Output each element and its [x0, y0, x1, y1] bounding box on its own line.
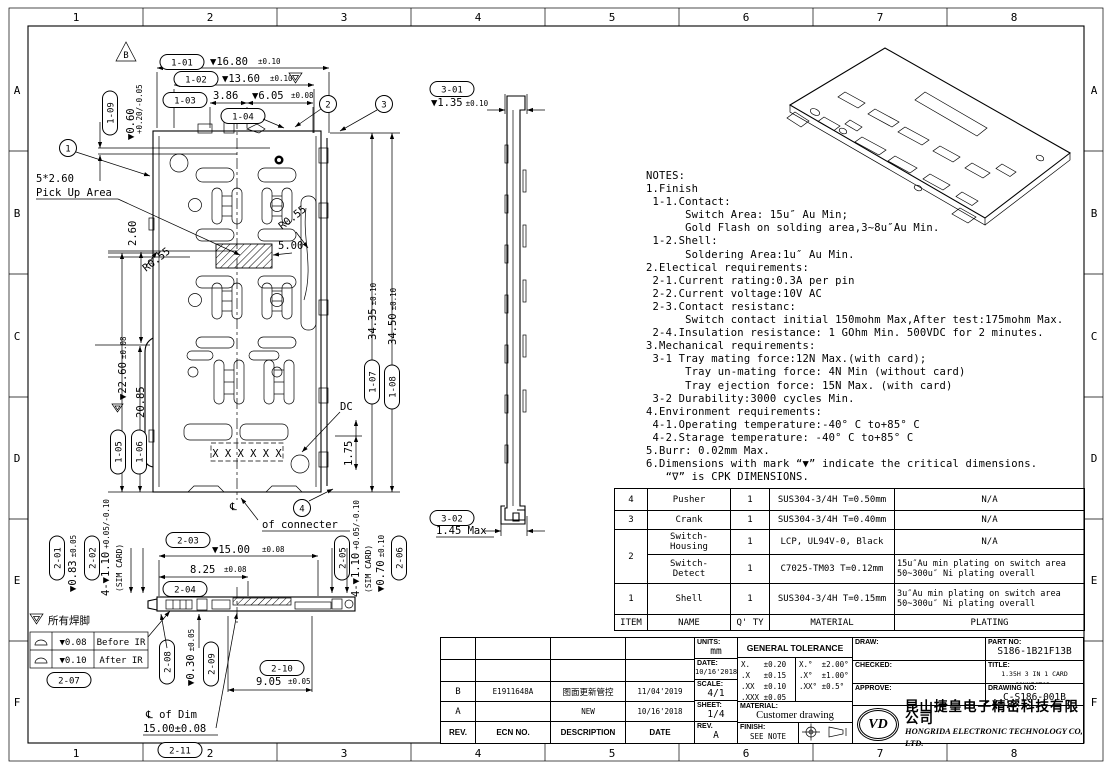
- bom-material: SUS304-3/4H T=0.50mm: [770, 489, 895, 511]
- tolerance-right: X.° ±2.00° .X° ±1.00° .XX° ±0.5°: [795, 657, 853, 702]
- grid-col-label: 2: [207, 747, 214, 760]
- grid-col-label: 4: [475, 747, 482, 760]
- bom-header-name: NAME: [648, 615, 731, 631]
- radius-label-r055: R0.55: [140, 245, 172, 274]
- rev-header-rev: REV.: [440, 721, 476, 744]
- rev-row-a-date: 10/16'2018: [625, 701, 695, 722]
- tolerance-right-values: X.° ±2.00° .X° ±1.00° .XX° ±0.5°: [796, 658, 852, 692]
- company-cell: VD 昆山捷皇电子精密科技有限公司 HONGRIDA ELECTRONIC TE…: [852, 705, 1084, 744]
- balloon-2-09: 2-09: [208, 653, 218, 675]
- bom-table: 4 Pusher 1 SUS304-3/4H T=0.50mm N/A 3 Cr…: [614, 488, 1085, 631]
- dim-3-01-text: ▼1.35±0.10: [431, 97, 489, 109]
- balloon-2-06: 2-06: [396, 547, 406, 569]
- sheet-label: SHEET:: [695, 701, 737, 709]
- dc-mark-text: X X X X X X: [212, 448, 282, 460]
- dim-1-07-text: 34.35±0.10: [367, 282, 379, 340]
- bom-qty: 1: [731, 511, 770, 530]
- dim-2-05-value: 4-▼1.10: [350, 553, 362, 597]
- flatness-before-label: Before IR: [97, 638, 146, 648]
- bom-material: SUS304-3/4H T=0.40mm: [770, 511, 895, 530]
- rev-value: A: [695, 730, 737, 741]
- flatness-after-value: ▼0.10: [59, 656, 86, 666]
- dim-2-03-tol: ±0.08: [262, 545, 285, 554]
- bom-material: C7025-TM03 T=0.12mm: [770, 555, 895, 584]
- rev-cell-empty: [475, 659, 551, 682]
- flatness-callout: 所有焊脚 ▼0.08 Before IR ▼0.10 After IR 2-07: [30, 611, 170, 688]
- cpk-symbol: [112, 404, 123, 412]
- rev-row-b-ecn: E1911648A: [475, 681, 551, 702]
- dim-2-01-text: ▼0.83±0.05: [67, 535, 79, 592]
- bom-item: 3: [615, 511, 648, 530]
- balloon-3-02: 3-02: [441, 515, 463, 525]
- dim-5-00: 5.00: [278, 240, 303, 252]
- grid-col-label: 1: [73, 11, 80, 24]
- material-label: MATERIAL:: [738, 702, 852, 710]
- grid-row-label: E: [14, 574, 21, 587]
- flatness-symbol-icon: [35, 658, 47, 663]
- bom-plating: N/A: [895, 511, 1085, 530]
- grid-col-label: 4: [475, 11, 482, 24]
- rev-cell-empty: [625, 637, 695, 660]
- company-name-en: HONGRIDA ELECTRONIC TECHNOLOGY CO, LTD.: [905, 725, 1083, 749]
- grid-row-label: B: [14, 207, 21, 220]
- grid-col-label: 3: [341, 747, 348, 760]
- grid-row-label: A: [14, 84, 21, 97]
- dim-2-02-value: 4-▼1.10: [100, 552, 112, 596]
- bom-header-material: MATERIAL: [770, 615, 895, 631]
- grid-row-label: D: [14, 452, 21, 465]
- bom-name: Switch- Housing: [648, 530, 731, 555]
- scale-value: 4/1: [695, 688, 737, 699]
- dc-label: DC: [340, 401, 353, 413]
- rev-cell-empty: [625, 659, 695, 682]
- checked-cell: CHECKED:: [852, 660, 986, 684]
- grid-row-label: C: [1091, 330, 1098, 343]
- dim-1-08-tol: ±0.10: [389, 287, 398, 310]
- scale-label: SCALE:: [695, 680, 737, 688]
- grid-col-label: 6: [743, 11, 750, 24]
- bom-qty: 1: [731, 530, 770, 555]
- bom-qty: 1: [731, 584, 770, 615]
- bom-plating: N/A: [895, 489, 1085, 511]
- rev-row-b-desc: 图面更新管控: [550, 681, 626, 702]
- bom-material: SUS304-3/4H T=0.15mm: [770, 584, 895, 615]
- scale-cell: SCALE: 4/1: [694, 679, 738, 701]
- finish-value: SEE NOTE: [738, 731, 798, 742]
- rev-header-ecn: ECN NO.: [475, 721, 551, 744]
- bom-header-qty: Q' TY: [731, 615, 770, 631]
- bom-name: Switch- Detect: [648, 555, 731, 584]
- grid-col-label: 7: [877, 747, 884, 760]
- grid-col-label: 2: [207, 11, 214, 24]
- of-connecter-label: of connecter: [262, 519, 338, 531]
- part-balloon-4-label: 4: [299, 505, 304, 515]
- sheet-cell: SHEET: 1/4: [694, 700, 738, 722]
- balloon-2-08: 2-08: [164, 651, 174, 673]
- rev-cell-empty: [440, 637, 476, 660]
- drawing-no-label: DRAWING NO:: [986, 684, 1083, 692]
- dim-1-07-value: 34.35: [367, 308, 379, 340]
- dim-2-01-value: ▼0.83: [67, 560, 79, 592]
- dim-1-02-tol: ±0.10: [270, 74, 293, 83]
- units-label: UNITS:: [695, 638, 737, 646]
- dim-1-01-value: ▼16.80: [210, 56, 248, 68]
- balloon-2-07: 2-07: [58, 677, 80, 687]
- balloon-1-01: 1-01: [171, 59, 193, 69]
- dim-2-02-text: 4-▼1.10+0.05/-0.10: [100, 499, 112, 596]
- bom-item: 2: [615, 530, 648, 584]
- dim-2-05-text: 4-▼1.10+0.05/-0.10: [350, 500, 362, 597]
- pickup-size-label: 5*2.60: [36, 173, 74, 185]
- dim-2-06-value: ▼0.70: [375, 560, 387, 592]
- centerline-symbol: ℄: [229, 501, 237, 513]
- tolerance-left-values: X. ±0.20 .X ±0.15 .XX ±0.10 .XXX ±0.05: [738, 658, 795, 703]
- company-logo: VD: [857, 708, 899, 741]
- balloon-1-05: 1-05: [115, 441, 125, 463]
- balloon-1-04: 1-04: [232, 113, 254, 123]
- dim-1-08-text: 34.50±0.10: [387, 287, 399, 345]
- draw-label: DRAW:: [853, 638, 985, 646]
- grid-col-label: 6: [743, 747, 750, 760]
- grid-col-label: 5: [609, 747, 616, 760]
- grid-col-label: 7: [877, 11, 884, 24]
- title-cell: TITLE: 1.35H 3 IN 1 CARD CONNECTOR.: [985, 660, 1084, 684]
- grid-col-label: 3: [341, 11, 348, 24]
- grid-row-label: A: [1091, 84, 1098, 97]
- bom-name: Pusher: [648, 489, 731, 511]
- dim-3-01-value: ▼1.35: [431, 97, 463, 109]
- dim-3-02-value: 1.45 Max: [436, 525, 487, 537]
- side-view: 3-01 ▼1.35±0.10 3-02 1.45 Max: [430, 82, 545, 538]
- grid-col-label: 8: [1011, 747, 1018, 760]
- rev-row-b-date: 11/04'2019: [625, 681, 695, 702]
- part-balloon-2-label: 2: [325, 101, 330, 111]
- cpk-symbol: [30, 614, 43, 624]
- bom-name: Crank: [648, 511, 731, 530]
- bom-row: 2 Switch- Housing 1 LCP, UL94V-0, Black …: [615, 530, 1085, 555]
- dim-1-08-value: 34.50: [387, 313, 399, 345]
- dim-1-09-tol: +0.20/-0.05: [135, 84, 144, 134]
- title-label: TITLE:: [986, 661, 1083, 669]
- approve-label: APPROVE:: [853, 684, 985, 692]
- bom-row: 3 Crank 1 SUS304-3/4H T=0.40mm N/A: [615, 511, 1085, 530]
- dim-2-06-tol: ±0.10: [377, 534, 386, 557]
- tolerance-title: GENERAL TOLERANCE: [737, 637, 853, 658]
- dim-2-09-text: ▼0.30±0.05: [185, 629, 197, 686]
- balloon-1-08: 1-08: [389, 376, 399, 398]
- sheet-value: 1/4: [695, 709, 737, 720]
- grid-col-label: 8: [1011, 11, 1018, 24]
- bottom-view: 2-03 ▼15.00±0.08 8.25±0.08 2-04 2-01 ▼0.…: [30, 499, 407, 758]
- bom-name: Shell: [648, 584, 731, 615]
- rev-label: REV.: [695, 722, 737, 730]
- bom-row: 1 Shell 1 SUS304-3/4H T=0.15mm 3u″Au min…: [615, 584, 1085, 615]
- balloon-2-02: 2-02: [89, 547, 99, 569]
- part-no-value: S186-1B21F13B: [986, 646, 1083, 657]
- grid-row-label: E: [1091, 574, 1098, 587]
- balloon-1-07: 1-07: [369, 371, 379, 393]
- top-view: X X X X X X: [95, 118, 328, 500]
- company-names: 昆山捷皇电子精密科技有限公司 HONGRIDA ELECTRONIC TECHN…: [905, 701, 1083, 749]
- dim-3-01-tol: ±0.10: [466, 99, 489, 108]
- dim-2-11-label: ℄ of Dim: [145, 709, 197, 721]
- date-cell: DATE: 10/16'2018: [694, 658, 738, 680]
- tolerance-left: X. ±0.20 .X ±0.15 .XX ±0.10 .XXX ±0.05: [737, 657, 796, 702]
- balloon-2-11: 2-11: [169, 747, 191, 757]
- engineering-drawing-sheet: 1 2 3 4 5 6 7 8 1 2 3 4 5 6 7 8 A B C D …: [0, 0, 1112, 769]
- balloon-1-03: 1-03: [174, 97, 196, 107]
- grid-col-label: 5: [609, 11, 616, 24]
- units-cell: UNITS: mm: [694, 637, 738, 659]
- dim-1-03-value: 3.86: [213, 90, 238, 102]
- dim-2-10-value: 9.05: [256, 676, 281, 688]
- dim-2-02-extra: (SIM CARD): [115, 544, 124, 592]
- radius-label-r055: R0.55: [276, 203, 308, 232]
- flatness-before-value: ▼0.08: [59, 638, 86, 648]
- rev-row-a-rev: A: [440, 701, 476, 722]
- balloon-2-10: 2-10: [271, 665, 293, 675]
- dim-1-05-tol: ±0.08: [119, 336, 128, 359]
- dim-2-06-text: ▼0.70±0.10: [375, 534, 387, 592]
- flatness-after-label: After IR: [99, 656, 143, 666]
- material-value: Customer drawing: [738, 710, 852, 721]
- bom-row: Switch- Detect 1 C7025-TM03 T=0.12mm 15u…: [615, 555, 1085, 584]
- balloon-1-09: 1-09: [107, 102, 117, 124]
- rev-cell-empty: [550, 637, 626, 660]
- rev-header-date: DATE: [625, 721, 695, 744]
- units-value: mm: [695, 646, 737, 657]
- grid-row-label: C: [14, 330, 21, 343]
- part-no-cell: PART NO: S186-1B21F13B: [985, 637, 1084, 661]
- balloon-1-02: 1-02: [185, 76, 207, 86]
- dim-1-06-value: 20.85: [135, 386, 147, 418]
- balloon-2-03: 2-03: [177, 537, 199, 547]
- bom-header-row: ITEM NAME Q' TY MATERIAL PLATING: [615, 615, 1085, 631]
- dim-1-75: 1.75: [343, 441, 355, 466]
- bom-item: 1: [615, 584, 648, 615]
- bom-header-item: ITEM: [615, 615, 648, 631]
- dim-1-05-text: ▼22.60±0.08: [117, 336, 129, 400]
- dim-1-04-value: ▼6.05: [252, 90, 284, 102]
- rev-cell-empty: [550, 659, 626, 682]
- rev-cell: REV. A: [694, 721, 738, 744]
- balloon-3-01: 3-01: [441, 86, 463, 96]
- date-value: 10/16'2018: [695, 667, 737, 678]
- bom-plating: 3u″Au min plating on switch area 50~300u…: [895, 584, 1085, 615]
- flatness-symbol-icon: [35, 640, 47, 645]
- bom-item: 4: [615, 489, 648, 511]
- dim-1-01-tol: ±0.10: [258, 57, 281, 66]
- bom-row: 4 Pusher 1 SUS304-3/4H T=0.50mm N/A: [615, 489, 1085, 511]
- dim-2-09-value: ▼0.30: [185, 654, 197, 686]
- rev-row-a-desc: NEW: [550, 701, 626, 722]
- pickup-area-label: Pick Up Area: [36, 187, 112, 199]
- draw-cell: DRAW:: [852, 637, 986, 661]
- dim-1-04-tol: ±0.08: [291, 91, 314, 100]
- bom-plating: 15u″Au min plating on switch area 50~300…: [895, 555, 1085, 584]
- dim-1-07-tol: ±0.10: [369, 282, 378, 305]
- rev-row-b-rev: B: [440, 681, 476, 702]
- dim-2-10-tol: ±0.05: [288, 677, 311, 686]
- dim-2-09-tol: ±0.05: [187, 629, 196, 652]
- finish-label: FINISH:: [738, 723, 798, 731]
- bom-plating: N/A: [895, 530, 1085, 555]
- grid-row-label: D: [1091, 452, 1098, 465]
- date-label: DATE:: [695, 659, 737, 667]
- rev-flag-label: B: [123, 51, 128, 61]
- dim-2-04-value: 8.25: [190, 564, 215, 576]
- rev-cell-empty: [475, 637, 551, 660]
- part-balloon-1-label: 1: [65, 145, 70, 155]
- company-name-cn: 昆山捷皇电子精密科技有限公司: [905, 701, 1083, 725]
- balloon-2-04: 2-04: [174, 586, 196, 596]
- third-angle-projection-icon: [799, 723, 849, 741]
- bom-material: LCP, UL94V-0, Black: [770, 530, 895, 555]
- dim-2-05-extra: (SIM CARD): [364, 545, 373, 593]
- dim-1-05-value: ▼22.60: [117, 362, 129, 400]
- grid-row-label: F: [1091, 696, 1098, 709]
- dim-2-60: 2.60: [127, 221, 139, 246]
- dim-2-11-value: 15.00±0.08: [143, 723, 206, 735]
- part-no-label: PART NO:: [986, 638, 1083, 646]
- rev-header-desc: DESCRIPTION: [550, 721, 626, 744]
- checked-label: CHECKED:: [853, 661, 985, 669]
- dim-2-04-tol: ±0.08: [224, 565, 247, 574]
- rev-cell-empty: [440, 659, 476, 682]
- balloon-1-06: 1-06: [136, 441, 146, 463]
- material-cell: MATERIAL: Customer drawing: [737, 701, 853, 723]
- projection-symbol-cell: [798, 722, 853, 744]
- dim-2-01-tol: ±0.05: [69, 535, 78, 558]
- part-balloon-3-label: 3: [381, 101, 386, 111]
- notes-block: NOTES: 1.Finish 1-1.Contact: Switch Area…: [646, 170, 1086, 484]
- dim-2-03-value: ▼15.00: [212, 544, 250, 556]
- bom-qty: 1: [731, 489, 770, 511]
- dim-1-02-value: ▼13.60: [222, 73, 260, 85]
- bom-qty: 1: [731, 555, 770, 584]
- balloon-2-01: 2-01: [54, 547, 64, 569]
- flatness-note: 所有焊脚: [48, 614, 90, 627]
- grid-col-label: 1: [73, 747, 80, 760]
- bom-header-plating: PLATING: [895, 615, 1085, 631]
- dim-2-02-tol: +0.05/-0.10: [102, 499, 111, 549]
- rev-row-a-ecn: [475, 701, 551, 722]
- grid-row-label: B: [1091, 207, 1098, 220]
- finish-cell: FINISH: SEE NOTE: [737, 722, 799, 744]
- dim-2-05-tol: +0.05/-0.10: [352, 500, 361, 550]
- grid-row-label: F: [14, 696, 21, 709]
